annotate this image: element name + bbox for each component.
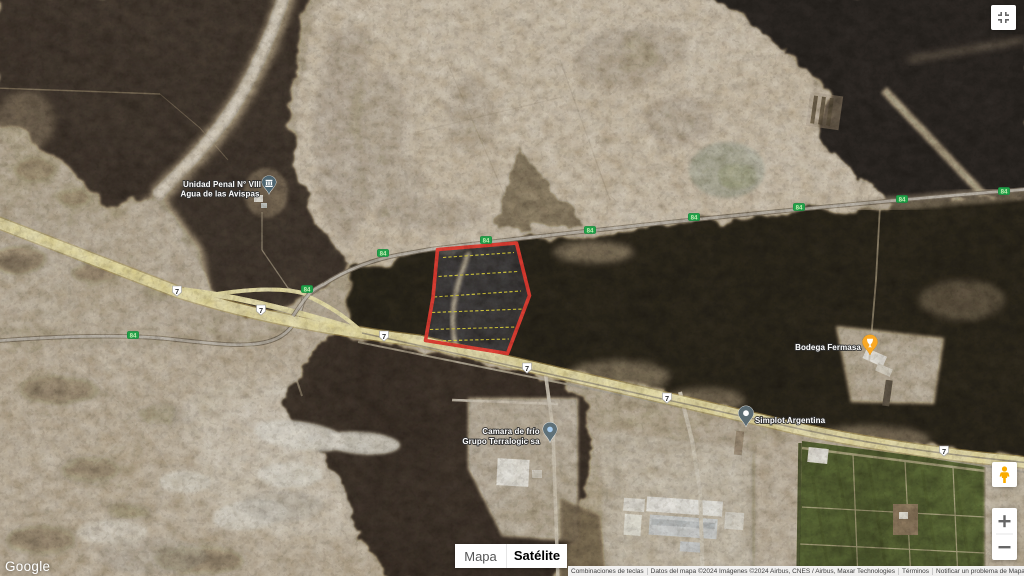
svg-text:84: 84 (380, 251, 387, 258)
svg-text:Agua de las Avispas: Agua de las Avispas (180, 190, 260, 199)
svg-text:7: 7 (259, 306, 263, 315)
svg-text:84: 84 (130, 333, 137, 340)
svg-text:7: 7 (175, 287, 179, 296)
svg-text:84: 84 (1001, 189, 1008, 196)
svg-text:7: 7 (525, 364, 529, 373)
svg-text:Bodega Fermasa: Bodega Fermasa (795, 343, 861, 352)
svg-text:84: 84 (587, 228, 594, 235)
svg-text:84: 84 (796, 205, 803, 212)
svg-text:7: 7 (382, 332, 386, 341)
svg-text:84: 84 (691, 215, 698, 222)
svg-text:Grupo Terralogic sa: Grupo Terralogic sa (462, 437, 540, 446)
svg-text:Simplot Argentina: Simplot Argentina (755, 416, 826, 425)
svg-text:7: 7 (665, 394, 669, 403)
svg-text:7: 7 (942, 447, 946, 456)
svg-text:Unidad Penal N° VIII: Unidad Penal N° VIII (183, 180, 261, 189)
svg-text:84: 84 (304, 287, 311, 294)
svg-text:84: 84 (483, 238, 490, 245)
svg-text:Camara de frío: Camara de frío (482, 427, 539, 436)
svg-text:84: 84 (899, 197, 906, 204)
